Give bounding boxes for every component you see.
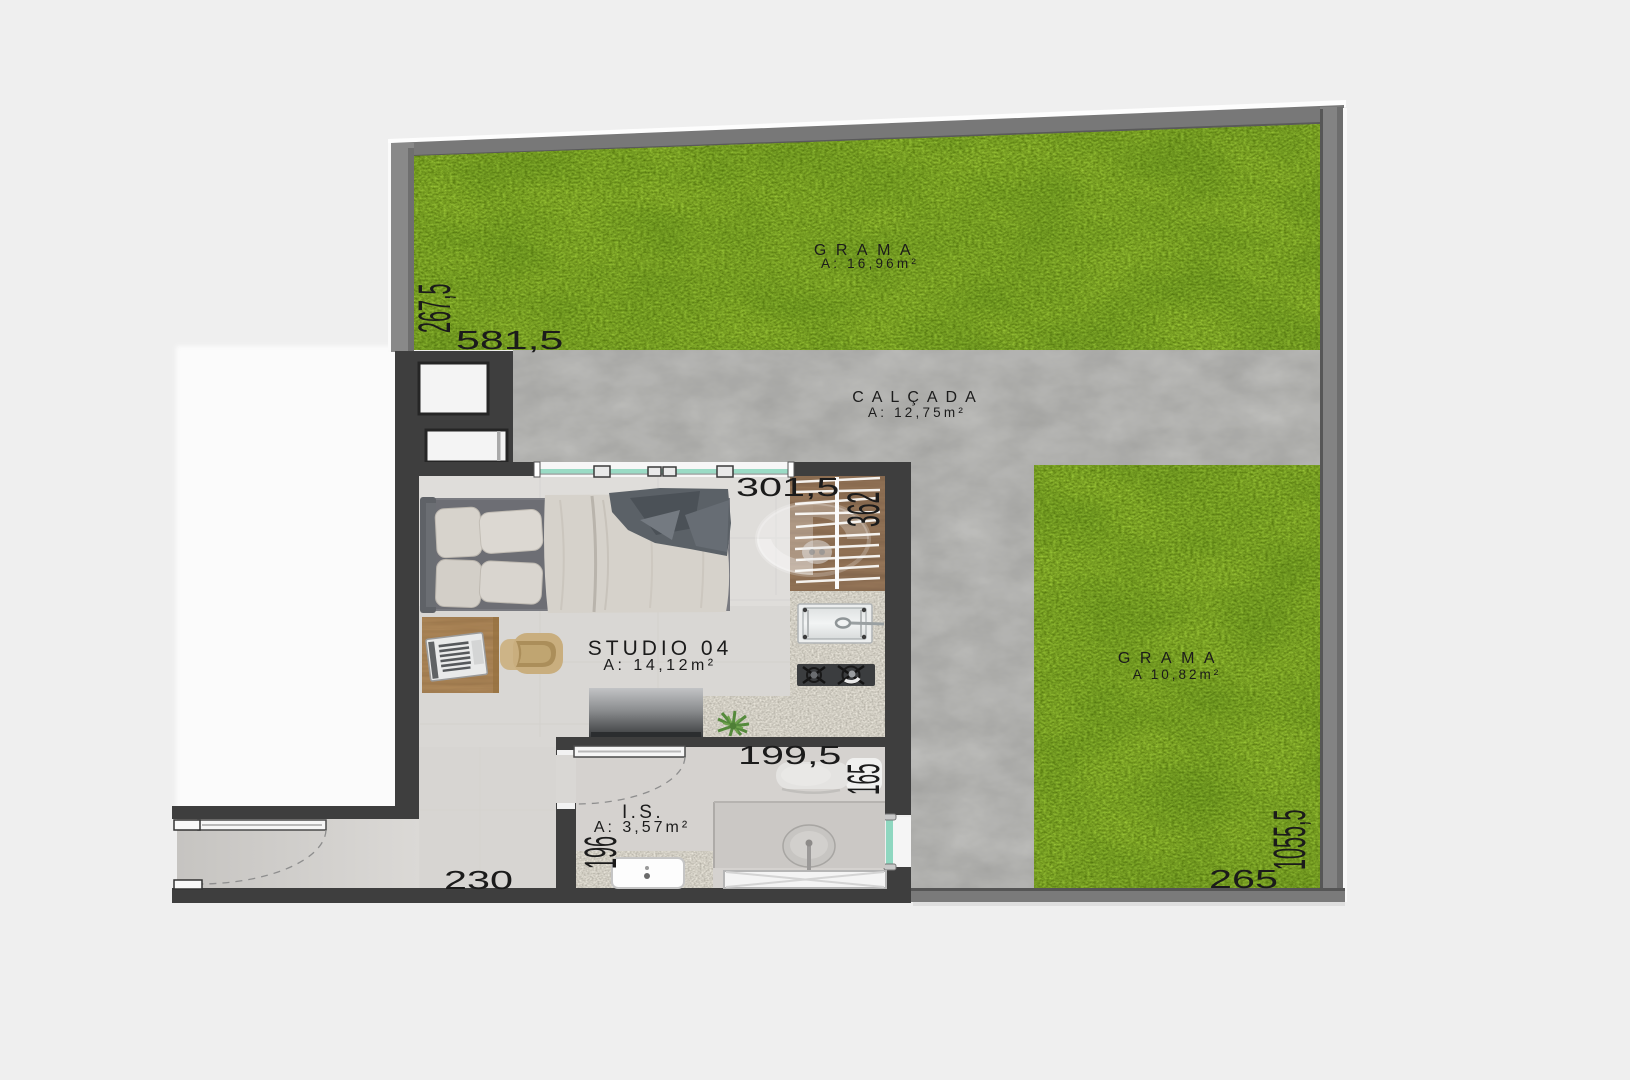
svg-text:196: 196 xyxy=(577,836,626,869)
svg-text:CALÇADA: CALÇADA xyxy=(852,389,984,406)
svg-text:165: 165 xyxy=(840,763,890,795)
svg-text:230: 230 xyxy=(444,866,513,895)
svg-text:A: 3,57m²: A: 3,57m² xyxy=(594,819,690,836)
svg-text:1055,5: 1055,5 xyxy=(1266,809,1315,870)
svg-text:362: 362 xyxy=(839,492,889,527)
svg-text:A: 14,12m²: A: 14,12m² xyxy=(603,657,716,674)
svg-text:A: 16,96m²: A: 16,96m² xyxy=(821,256,919,271)
svg-text:581,5: 581,5 xyxy=(456,326,563,355)
svg-text:GRAMA: GRAMA xyxy=(1118,650,1224,667)
svg-text:301,5: 301,5 xyxy=(736,473,839,502)
svg-text:199,5: 199,5 xyxy=(738,741,841,770)
svg-text:A 10,82m²: A 10,82m² xyxy=(1133,667,1222,682)
svg-text:267,5: 267,5 xyxy=(411,283,460,333)
svg-text:A: 12,75m²: A: 12,75m² xyxy=(868,405,966,420)
